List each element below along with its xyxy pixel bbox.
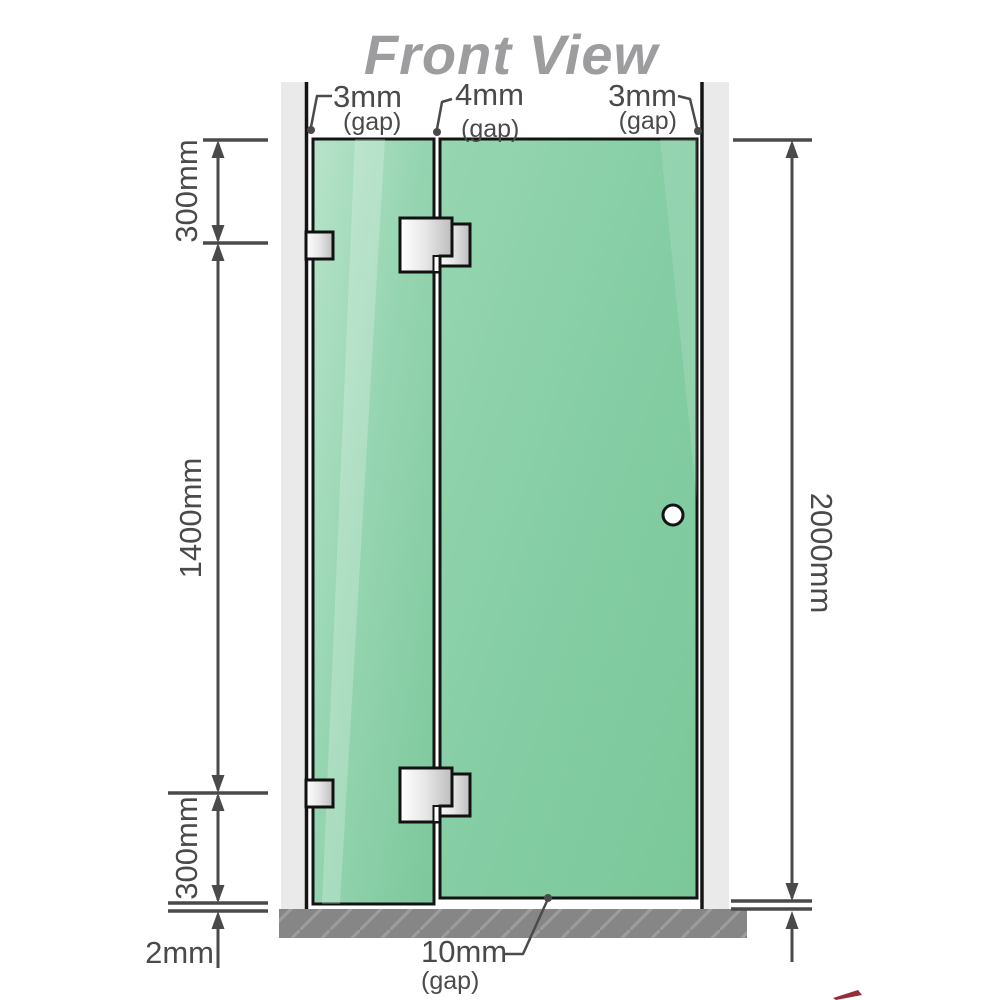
label-1400: 1400mm (173, 458, 208, 579)
callout-gap-top-right: 3mm (gap) (608, 78, 702, 135)
arrow-down-300-top (212, 225, 225, 243)
label-gap-bottom-qualifier: (gap) (421, 967, 479, 995)
left-wall-strip (281, 82, 305, 909)
leader-dot-top-right (694, 127, 702, 135)
arrow-up-2000 (786, 140, 799, 158)
door-knob (663, 505, 683, 525)
label-2000: 2000mm (804, 493, 839, 614)
arrow-up-300-bottom (212, 793, 225, 811)
door-panel-glass (440, 139, 697, 898)
left-wall (281, 82, 307, 909)
floor-base (279, 909, 747, 938)
leader-top-middle (437, 99, 452, 129)
hinge-top (400, 218, 470, 272)
arrow-up-1400 (212, 243, 225, 261)
right-wall-strip (704, 82, 729, 909)
label-gap-top-middle-value: 4mm (455, 77, 524, 112)
leader-dot-top-left (307, 126, 315, 134)
label-gap-bottom-value: 10mm (421, 934, 507, 969)
diagram-canvas: Front View (0, 0, 1000, 1000)
label-300-top: 300mm (169, 139, 204, 242)
hinge-bottom (400, 768, 470, 822)
leader-top-left (311, 96, 332, 127)
left-dimension-chain: 300mm 1400mm 300mm 2mm (145, 139, 268, 970)
leader-dot-top-middle (433, 128, 441, 136)
door-glass-panel (440, 139, 697, 898)
wall-bracket-top (306, 232, 333, 259)
arrow-down-1400 (212, 775, 225, 793)
hinge-bottom-gap-notch (434, 806, 440, 822)
label-300-bottom: 300mm (169, 796, 204, 899)
hinge-top-gap-notch (434, 256, 440, 272)
label-gap-top-left-qualifier: (gap) (343, 108, 401, 136)
label-gap-top-right-qualifier: (gap) (619, 107, 677, 135)
wall-bracket-bottom (306, 780, 333, 807)
right-wall (702, 82, 729, 909)
front-view-diagram: Front View (0, 0, 1000, 1000)
leader-dot-bottom (544, 894, 552, 902)
callout-gap-top-middle: 4mm (gap) (433, 77, 524, 143)
arrow-up-300-top (212, 140, 225, 158)
corner-artifact (833, 990, 862, 1000)
arrow-down-2000 (786, 883, 799, 901)
leader-top-right (678, 96, 697, 128)
label-2mm: 2mm (145, 935, 214, 970)
right-dimension: 2000mm (731, 140, 839, 962)
label-gap-top-middle-qualifier: (gap) (461, 115, 519, 143)
callout-gap-top-left: 3mm (gap) (307, 79, 402, 136)
arrow-down-300-bottom (212, 885, 225, 903)
